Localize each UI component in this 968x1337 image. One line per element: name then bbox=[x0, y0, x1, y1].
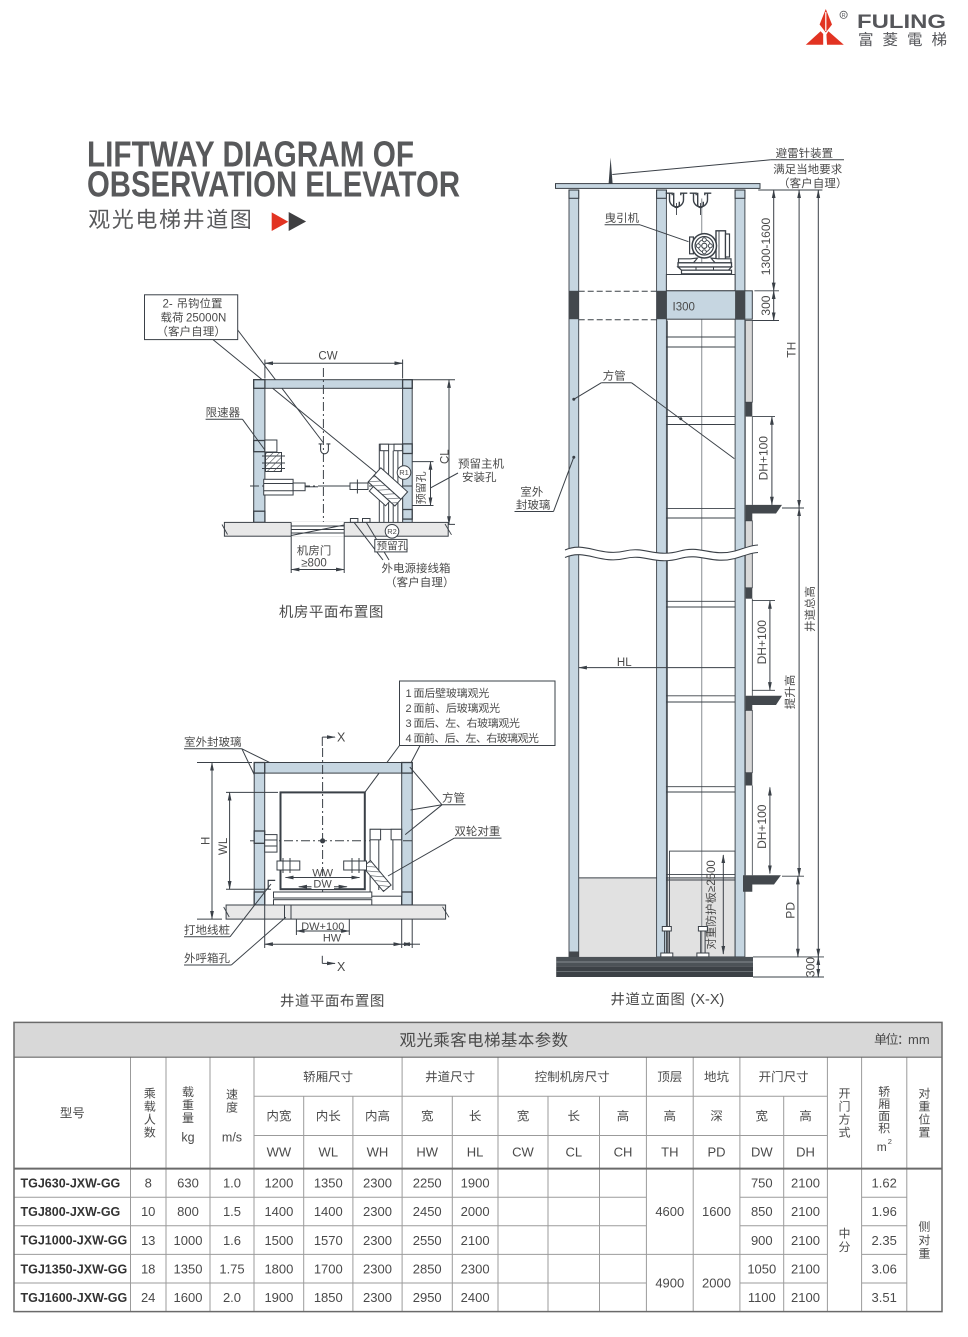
svg-text:2550: 2550 bbox=[413, 1233, 442, 1248]
svg-text:TGJ1000-JXW-GG: TGJ1000-JXW-GG bbox=[21, 1234, 128, 1248]
svg-text:800: 800 bbox=[177, 1204, 199, 1219]
svg-text:2: 2 bbox=[888, 1137, 892, 1146]
svg-text:TH: TH bbox=[661, 1145, 678, 1160]
svg-text:1200: 1200 bbox=[264, 1176, 293, 1191]
svg-text:1850: 1850 bbox=[314, 1290, 343, 1305]
svg-text:2: 2 bbox=[406, 703, 412, 715]
svg-text:300: 300 bbox=[803, 957, 817, 977]
svg-text:WL: WL bbox=[218, 837, 230, 855]
svg-text:DW: DW bbox=[751, 1145, 773, 1160]
svg-text:mm: mm bbox=[908, 1032, 930, 1047]
svg-text:13: 13 bbox=[141, 1233, 155, 1248]
svg-text:1500: 1500 bbox=[264, 1233, 293, 1248]
svg-text:2100: 2100 bbox=[791, 1176, 820, 1191]
svg-text:4900: 4900 bbox=[655, 1276, 684, 1291]
svg-text:1.0: 1.0 bbox=[223, 1176, 241, 1191]
svg-text:2-: 2- bbox=[163, 299, 173, 311]
svg-text:24: 24 bbox=[141, 1290, 155, 1305]
svg-text:2.35: 2.35 bbox=[872, 1233, 897, 1248]
svg-text:m: m bbox=[877, 1140, 887, 1154]
svg-text:WH: WH bbox=[367, 1145, 389, 1160]
svg-text:HL: HL bbox=[617, 657, 632, 669]
svg-text:≥800: ≥800 bbox=[301, 558, 327, 570]
svg-text:2000: 2000 bbox=[702, 1276, 731, 1291]
svg-text:630: 630 bbox=[177, 1176, 199, 1191]
svg-text:HW: HW bbox=[323, 933, 342, 945]
svg-text:DH+100: DH+100 bbox=[756, 436, 770, 481]
svg-text:1: 1 bbox=[406, 688, 412, 700]
svg-text:2300: 2300 bbox=[363, 1204, 392, 1219]
svg-text:2100: 2100 bbox=[791, 1290, 820, 1305]
svg-text:1300-1600: 1300-1600 bbox=[759, 217, 773, 275]
svg-text:CL: CL bbox=[440, 449, 452, 464]
svg-text:TGJ630-JXW-GG: TGJ630-JXW-GG bbox=[21, 1177, 121, 1191]
svg-text:TGJ800-JXW-GG: TGJ800-JXW-GG bbox=[21, 1205, 121, 1219]
svg-text:H: H bbox=[201, 837, 213, 845]
svg-text:TH: TH bbox=[784, 342, 798, 358]
svg-text:2400: 2400 bbox=[461, 1290, 490, 1305]
svg-text:1.96: 1.96 bbox=[872, 1204, 897, 1219]
svg-text:R1: R1 bbox=[399, 468, 409, 477]
svg-text:1400: 1400 bbox=[264, 1204, 293, 1219]
svg-text:2100: 2100 bbox=[791, 1233, 820, 1248]
svg-text:CH: CH bbox=[614, 1145, 633, 1160]
svg-text:TGJ1600-JXW-GG: TGJ1600-JXW-GG bbox=[21, 1291, 128, 1305]
svg-text:1100: 1100 bbox=[748, 1290, 776, 1305]
svg-text:750: 750 bbox=[751, 1176, 773, 1191]
svg-text:4600: 4600 bbox=[655, 1204, 684, 1219]
svg-text:DH+100: DH+100 bbox=[755, 620, 769, 665]
svg-text:3.51: 3.51 bbox=[872, 1290, 897, 1305]
svg-text:PD: PD bbox=[783, 902, 797, 919]
svg-text:1.5: 1.5 bbox=[223, 1204, 241, 1219]
svg-text:PD: PD bbox=[707, 1145, 725, 1160]
svg-text:10: 10 bbox=[141, 1204, 155, 1219]
svg-text:2300: 2300 bbox=[363, 1290, 392, 1305]
svg-text:CW: CW bbox=[512, 1145, 534, 1160]
svg-text:850: 850 bbox=[751, 1204, 773, 1219]
svg-text:WL: WL bbox=[319, 1145, 339, 1160]
svg-text:DW: DW bbox=[313, 879, 332, 891]
svg-text:2100: 2100 bbox=[791, 1204, 820, 1219]
svg-text:18: 18 bbox=[141, 1261, 155, 1276]
svg-text:R2: R2 bbox=[387, 527, 397, 536]
svg-text:2950: 2950 bbox=[413, 1290, 442, 1305]
svg-text:1350: 1350 bbox=[314, 1176, 343, 1191]
svg-text:8: 8 bbox=[145, 1176, 152, 1191]
svg-text:HW: HW bbox=[416, 1145, 438, 1160]
svg-text:1800: 1800 bbox=[264, 1261, 293, 1276]
svg-text:2300: 2300 bbox=[363, 1261, 392, 1276]
svg-text:X: X bbox=[337, 960, 346, 974]
svg-text:2100: 2100 bbox=[461, 1233, 490, 1248]
svg-text:1.6: 1.6 bbox=[223, 1233, 241, 1248]
svg-text:WW: WW bbox=[267, 1145, 292, 1160]
svg-text:3.06: 3.06 bbox=[872, 1261, 897, 1276]
svg-text:1700: 1700 bbox=[314, 1261, 343, 1276]
svg-text:1570: 1570 bbox=[314, 1233, 343, 1248]
svg-text:HL: HL bbox=[467, 1145, 484, 1160]
svg-text:I300: I300 bbox=[673, 302, 695, 314]
svg-text:CW: CW bbox=[318, 351, 337, 363]
svg-text:(X-X): (X-X) bbox=[691, 992, 725, 1008]
svg-text:2300: 2300 bbox=[363, 1233, 392, 1248]
svg-text:1050: 1050 bbox=[747, 1261, 776, 1276]
svg-text:kg: kg bbox=[181, 1130, 194, 1144]
svg-text:4: 4 bbox=[406, 733, 412, 745]
svg-text:TGJ1350-JXW-GG: TGJ1350-JXW-GG bbox=[21, 1262, 128, 1276]
svg-text:3: 3 bbox=[406, 718, 412, 730]
svg-text:2300: 2300 bbox=[461, 1261, 490, 1276]
svg-text:2250: 2250 bbox=[413, 1176, 442, 1191]
svg-text:DH: DH bbox=[796, 1145, 815, 1160]
svg-text:1900: 1900 bbox=[264, 1290, 293, 1305]
svg-text:CL: CL bbox=[565, 1145, 582, 1160]
svg-text:1.75: 1.75 bbox=[219, 1261, 244, 1276]
svg-text:900: 900 bbox=[751, 1233, 773, 1248]
svg-text:FULING: FULING bbox=[857, 12, 946, 33]
svg-text:2100: 2100 bbox=[791, 1261, 820, 1276]
svg-text:≥2500: ≥2500 bbox=[706, 860, 718, 892]
svg-text:1600: 1600 bbox=[174, 1290, 203, 1305]
svg-text:1600: 1600 bbox=[702, 1204, 731, 1219]
svg-text:1900: 1900 bbox=[461, 1176, 490, 1191]
svg-text:25000N: 25000N bbox=[186, 313, 226, 325]
svg-text:1.62: 1.62 bbox=[872, 1176, 897, 1191]
svg-text:300: 300 bbox=[759, 295, 773, 315]
svg-text:OBSERVATION ELEVATOR: OBSERVATION ELEVATOR bbox=[87, 164, 460, 205]
svg-text:DH+100: DH+100 bbox=[755, 804, 769, 849]
svg-text:2850: 2850 bbox=[413, 1261, 442, 1276]
svg-text:R: R bbox=[842, 13, 846, 19]
svg-text:2.0: 2.0 bbox=[223, 1290, 241, 1305]
svg-text:2450: 2450 bbox=[413, 1204, 442, 1219]
svg-text:1000: 1000 bbox=[174, 1233, 203, 1248]
svg-text:m/s: m/s bbox=[222, 1130, 242, 1144]
svg-text:1400: 1400 bbox=[314, 1204, 343, 1219]
svg-text:1350: 1350 bbox=[174, 1261, 203, 1276]
svg-text:X: X bbox=[337, 731, 346, 745]
svg-text:2300: 2300 bbox=[363, 1176, 392, 1191]
svg-text:2000: 2000 bbox=[461, 1204, 490, 1219]
